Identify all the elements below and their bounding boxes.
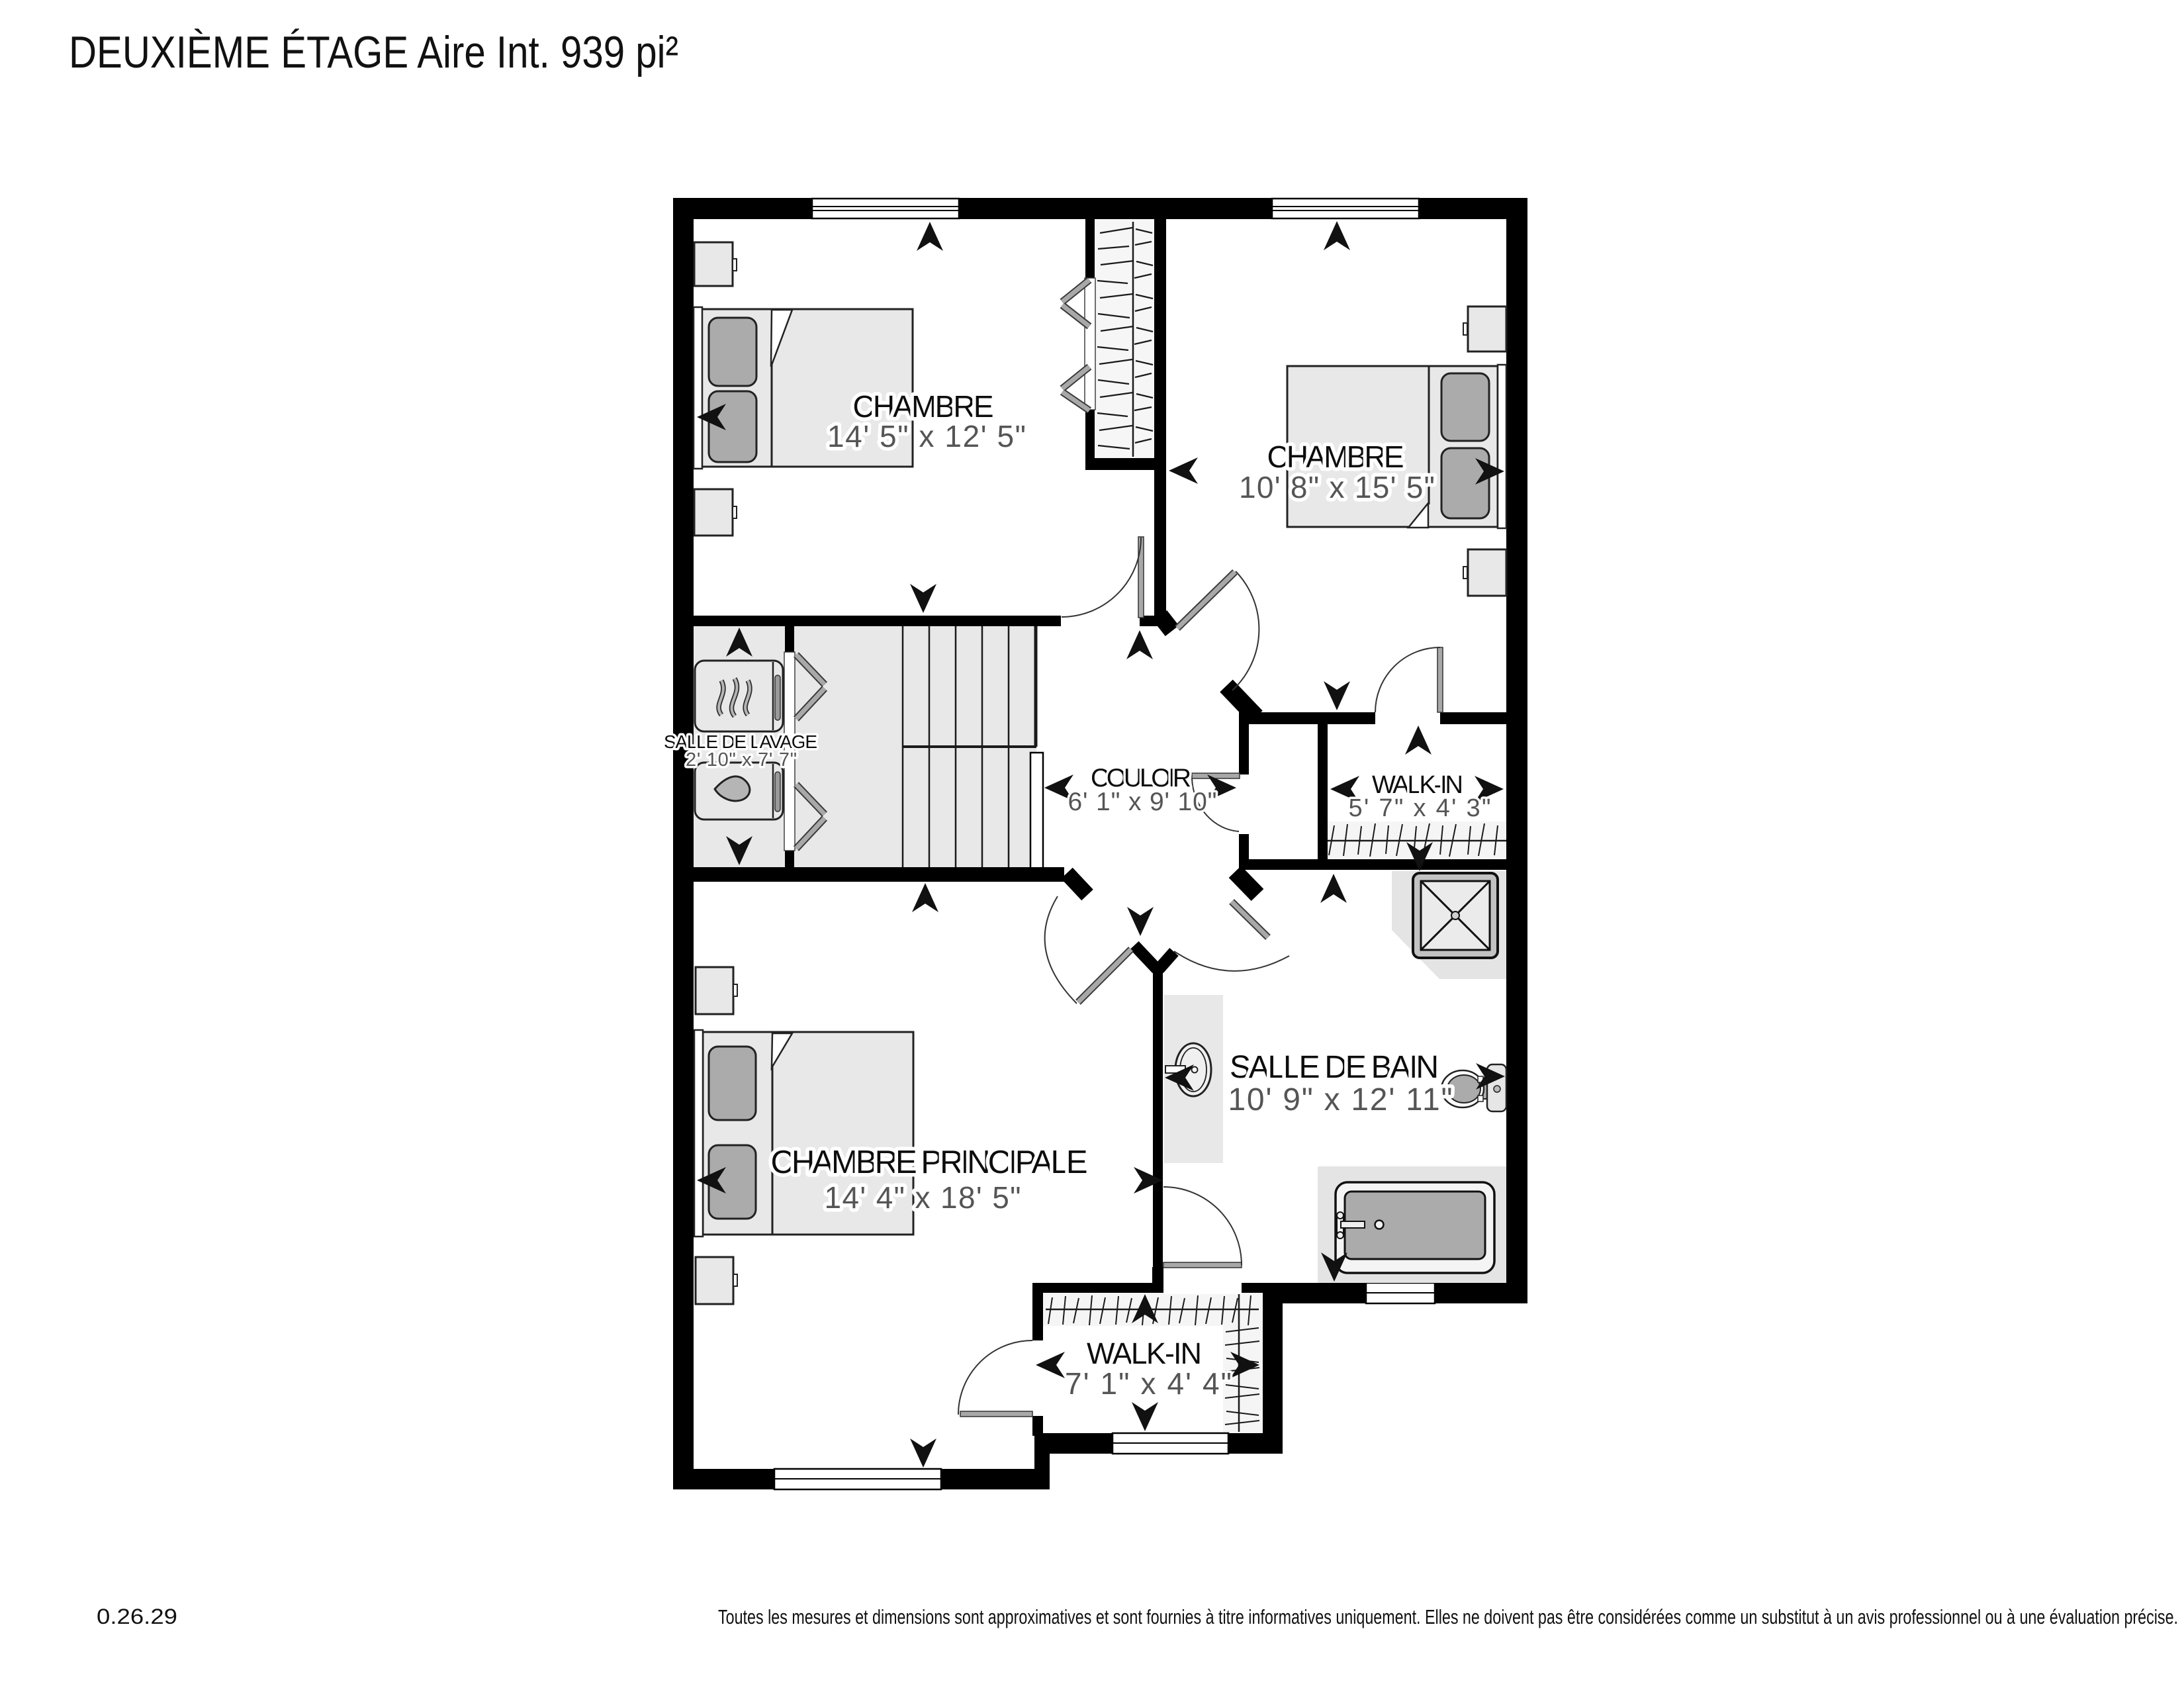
svg-text:Toutes les mesures et dimensio: Toutes les mesures et dimensions sont ap… [718,1605,2178,1628]
svg-text:7' 1" x 4' 4": 7' 1" x 4' 4" [1065,1366,1232,1401]
svg-text:WALK-IN: WALK-IN [1087,1336,1202,1370]
svg-text:2' 10" x 7' 7": 2' 10" x 7' 7" [686,749,797,771]
svg-text:0.26.29: 0.26.29 [97,1605,177,1628]
svg-text:SALLE DE BAIN: SALLE DE BAIN [1230,1050,1439,1085]
svg-text:CHAMBRE PRINCIPALE: CHAMBRE PRINCIPALE [771,1145,1088,1180]
svg-text:CHAMBRE: CHAMBRE [1267,440,1404,474]
svg-text:DEUXIÈME ÉTAGE Aire Int. 939 p: DEUXIÈME ÉTAGE Aire Int. 939 pi² [69,27,678,77]
svg-text:5' 7" x 4' 3": 5' 7" x 4' 3" [1349,794,1491,822]
svg-text:6' 1" x 9' 10": 6' 1" x 9' 10" [1068,788,1217,816]
